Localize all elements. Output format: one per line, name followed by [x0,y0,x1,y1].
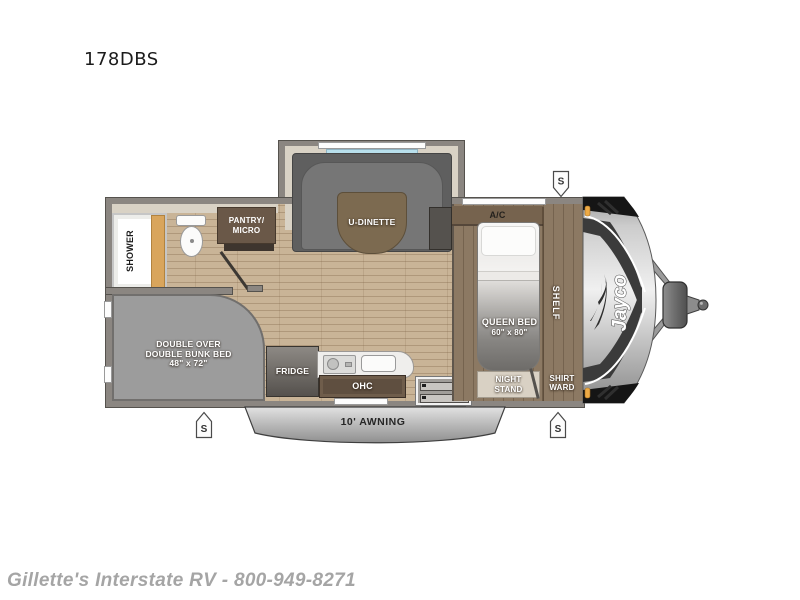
front-top-window [462,198,546,205]
pantry-shelf [224,244,274,251]
dinette-table: U-DINETTE [337,192,407,254]
slideout-window [318,142,426,149]
stove-knobs [345,362,352,367]
awning-label: 10' AWNING [341,416,406,428]
kitchen-window [334,398,388,405]
fridge-label: FRIDGE [276,367,309,377]
toilet-drain [190,239,194,243]
ohc-label: OHC [352,381,373,391]
bunk-label-line3: 48" x 72" [169,359,207,369]
pantry-cabinet: PANTRY/ MICRO [217,207,276,244]
hitch-coupler [687,296,699,314]
ac-label: A/C [489,210,505,220]
dinette-label: U-DINETTE [348,218,395,228]
marker-light-bottom [585,388,590,398]
marker-light-top [585,206,590,216]
overhead-cabinet: OHC [319,375,406,398]
queen-label-line2: 60" x 80" [491,328,527,337]
speaker-top: S [552,170,570,198]
queen-label-line1: QUEEN BED [482,317,537,327]
queen-bed: QUEEN BED 60" x 80" [477,222,540,371]
stove-burner [327,358,339,370]
propane-tank-cover [663,282,687,328]
bedroom-cabinet [429,207,452,250]
bathroom-wall-stub [247,285,263,292]
awning-graphic: 10' AWNING [242,406,508,448]
speaker-bottom-right: S [549,411,567,439]
queen-bed-pillows [481,226,536,256]
shower-label: SHOWER [125,216,137,286]
jayco-logo-text: Jayco [609,275,631,332]
fridge: FRIDGE [266,346,319,397]
pantry-label-line1: PANTRY/ [229,216,265,225]
toilet-tank [176,215,206,226]
rear-window-lower [104,366,112,383]
floorplan-model-title: 178DBS [84,49,159,70]
wardrobe-label-line2: WARD [549,383,574,392]
floorplan-page: 178DBS U-DINETTE SHOWER PANTRY/ MICRO [0,0,800,600]
nightstand-label-line1: NIGHT [496,375,522,384]
queen-bed-labels: QUEEN BED 60" x 80" [478,311,540,343]
speaker-bottom-left: S [195,411,213,439]
hitch-ball-highlight [700,302,703,305]
shower-door [151,215,165,288]
dealer-watermark: Gillette's Interstate RV - 800-949-8271 [7,570,356,592]
front-cap-graphic: Jayco [578,190,718,414]
pantry-label-line2: MICRO [233,226,261,235]
shelf-label: SHELF [549,278,561,328]
wardrobe-label-line1: SHIRT [550,374,575,383]
bunk-bed: DOUBLE OVER DOUBLE BUNK BED 48" x 72" [112,294,265,401]
rear-window-upper [104,301,112,318]
speaker-top-label: S [558,177,565,188]
sink [361,355,396,372]
queen-bed-fold [478,271,540,281]
speaker-bottom-right-label: S [555,424,562,435]
hitch-ball [698,300,708,310]
nightstand-label-line2: STAND [495,385,523,394]
speaker-bottom-left-label: S [201,424,208,435]
